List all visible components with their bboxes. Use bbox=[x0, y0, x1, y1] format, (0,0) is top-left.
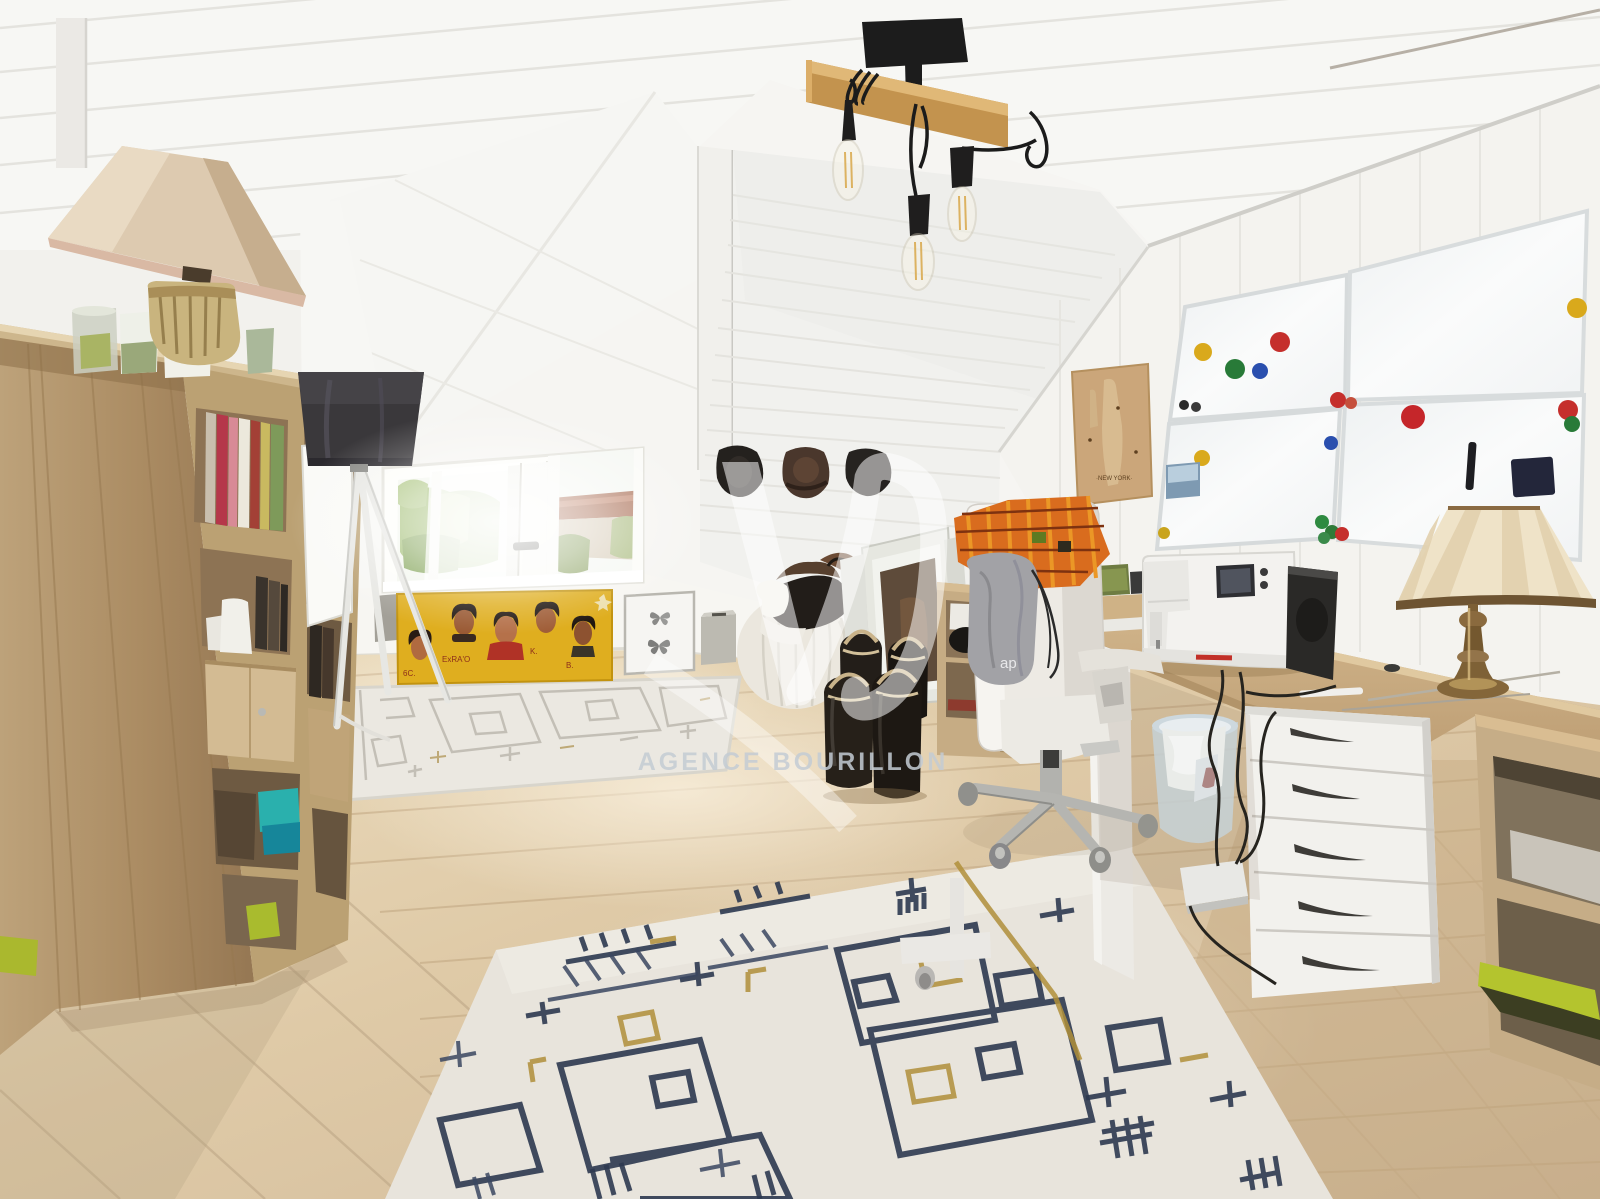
svg-text:6C.: 6C. bbox=[403, 669, 415, 678]
svg-text:AGENCE BOURILLON: AGENCE BOURILLON bbox=[638, 748, 949, 776]
svg-text:K.: K. bbox=[530, 647, 538, 656]
svg-text:ap: ap bbox=[1000, 655, 1017, 672]
svg-text:ExRA'O: ExRA'O bbox=[442, 655, 470, 664]
svg-text:·NEW YORK·: ·NEW YORK· bbox=[1096, 476, 1133, 482]
svg-text:B.: B. bbox=[566, 661, 574, 670]
